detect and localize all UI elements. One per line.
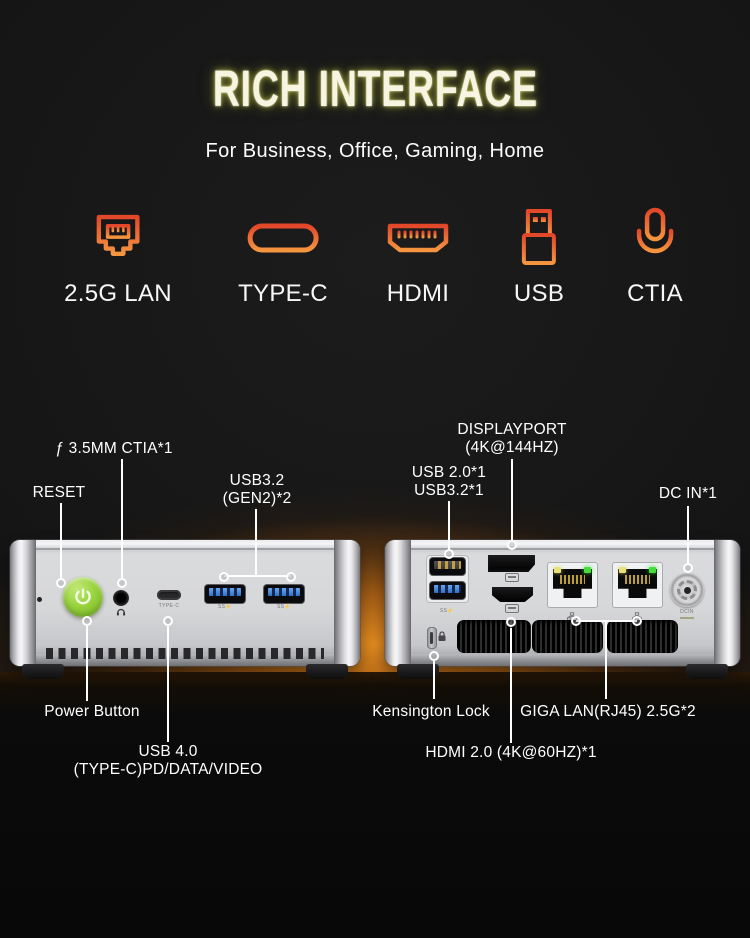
callout-line [511,459,513,540]
superspeed-logo: SS⚡ [277,604,291,610]
callout-audio-jack: ƒ 3.5MM CTIA*1 [55,440,172,458]
rear-vent-grille [607,620,678,653]
callout-line [86,626,88,701]
usb3-tongue [434,585,461,593]
feature-lan-label: 2.5G LAN [64,280,172,308]
usb3-tongue [209,588,241,596]
callout-rear-usb: USB 2.0*1 USB3.2*1 [412,464,486,499]
callout-dot [429,651,439,661]
callout-dot [683,563,693,573]
callout-dot [506,617,516,627]
dcin-rating-mark [680,617,694,619]
callout-line [255,509,257,576]
feature-lan: 2.5G LAN [64,206,172,308]
callout-dot [507,540,517,550]
callout-displayport-line2: (4K@144HZ) [457,439,566,457]
feature-typec: TYPE-C [238,206,328,308]
product-infographic: RICH INTERFACE For Business, Office, Gam… [0,0,750,938]
usb32-port[interactable] [430,582,465,599]
callout-line [687,506,689,563]
page-subtitle: For Business, Office, Gaming, Home [0,140,750,163]
rear-vent-grille [457,620,531,653]
hdmi-icon-mini [505,604,519,613]
device-foot [306,664,348,679]
power-icon [72,586,94,608]
usb4-type-c-port[interactable] [157,590,181,600]
hdmi-port[interactable] [492,587,533,602]
callout-rear-usb-line1: USB 2.0*1 [412,464,486,482]
device-left-edge [10,540,36,666]
callout-power-button: Power Button [44,703,139,721]
callout-usb32-line1: USB3.2 [223,472,292,490]
device-top-seam [410,548,715,550]
feature-usb: USB [514,206,564,308]
callout-line [510,628,512,743]
device-left-edge [385,540,411,666]
usb3-tongue [268,588,300,596]
usb32-port-2[interactable] [264,585,304,603]
callout-line [167,626,169,742]
lan-led-yellow [619,567,626,573]
dc-in-port[interactable] [670,573,704,607]
callout-usb4-line1: USB 4.0 [74,743,263,761]
device-foot [686,664,728,679]
rj45-pins [560,575,585,584]
device-right-edge [334,540,360,666]
feature-usb-label: USB [514,280,564,308]
usb20-port[interactable] [430,558,465,575]
rear-vent-grille [532,620,603,653]
lan-led-green [584,567,591,573]
kensington-lock-slot[interactable] [427,627,437,649]
callout-dot [286,572,296,582]
callout-reset: RESET [33,484,86,502]
superspeed-logo: SS⚡ [218,604,232,610]
callout-giga-lan: GIGA LAN(RJ45) 2.5G*2 [520,703,696,721]
callout-line [121,459,123,579]
callout-dot [82,616,92,626]
feature-typec-label: TYPE-C [238,280,328,308]
rj45-pins [625,575,650,584]
callout-line [60,503,62,579]
callout-dot [632,616,642,626]
microphone-icon [634,206,676,270]
type-c-port-label: TYPE-C [159,603,180,609]
page-title-text: RICH INTERFACE [212,60,537,118]
callout-displayport-line1: DISPLAYPORT [457,421,566,439]
device-foot [22,664,64,679]
feature-hdmi: HDMI [385,206,451,308]
device-bottom-band [410,654,715,666]
dcin-port-label: DCIN [680,609,694,615]
callout-line [433,661,435,699]
dc-in-pin [684,587,691,594]
callout-line [448,501,450,550]
callout-usb4: USB 4.0 (TYPE-C)PD/DATA/VIDEO [74,743,263,778]
hdmi-icon [385,206,451,270]
callout-dot [56,578,66,588]
usb2-tongue [434,561,461,569]
callout-dot [163,616,173,626]
callout-dot [444,549,454,559]
callout-usb4-line2: (TYPE-C)PD/DATA/VIDEO [74,761,263,779]
device-right-edge [714,540,740,666]
feature-hdmi-label: HDMI [387,280,450,308]
headset-icon [116,607,126,616]
lan-led-yellow [554,567,561,573]
displayport-icon [505,573,519,582]
callout-kensington: Kensington Lock [372,703,490,721]
lan-port-icon [90,206,146,270]
displayport-port[interactable] [488,555,535,572]
callout-rear-usb-line2: USB3.2*1 [412,482,486,500]
callout-usb32-line2: (GEN2)*2 [223,490,292,508]
lan-port-1[interactable] [548,563,597,607]
reset-pinhole[interactable] [37,597,42,602]
usb32-port-1[interactable] [205,585,245,603]
feature-ctia-label: CTIA [627,280,683,308]
callout-line [605,622,607,699]
audio-jack-port[interactable] [113,590,129,606]
superspeed-logo: SS⚡ [440,608,454,614]
callout-dot [571,616,581,626]
callout-hdmi: HDMI 2.0 (4K@60HZ)*1 [425,744,596,762]
callout-line [224,575,291,577]
feature-ctia: CTIA [627,206,683,308]
callout-dot [117,578,127,588]
mini-pc-front-view: TYPE-C SS⚡ SS⚡ [10,540,360,666]
callout-dc-in: DC IN*1 [659,485,717,503]
callout-usb32: USB3.2 (GEN2)*2 [223,472,292,507]
device-top-seam [35,548,335,550]
usb-c-icon [246,206,320,270]
callout-dot [219,572,229,582]
callout-displayport: DISPLAYPORT (4K@144HZ) [457,421,566,456]
usb-a-icon [516,206,562,270]
power-button[interactable] [63,577,103,617]
lan-led-green [649,567,656,573]
page-title: RICH INTERFACE [0,62,750,117]
lock-icon [437,630,447,643]
lan-port-2[interactable] [613,563,662,607]
